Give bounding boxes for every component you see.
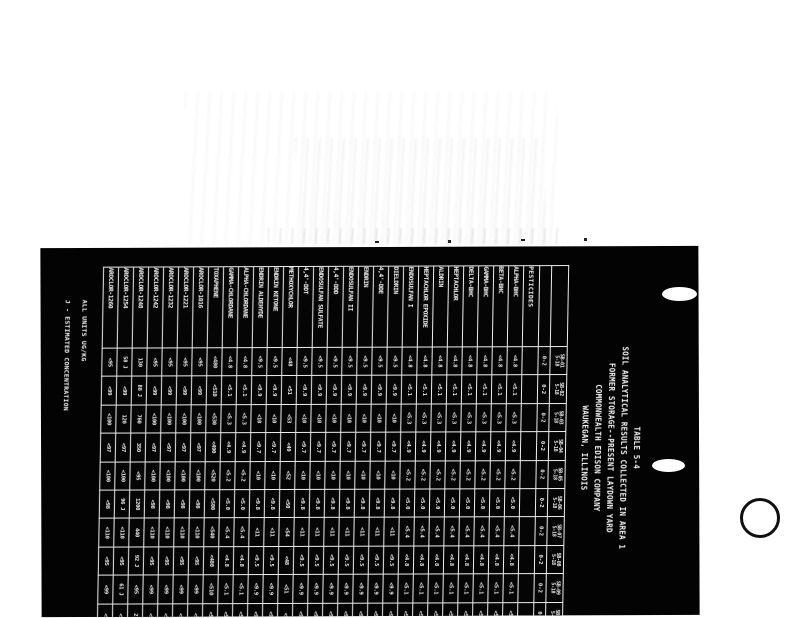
value-cell: <5.0: [234, 490, 249, 518]
value-cell: <10: [251, 404, 266, 432]
analyte-name-cell: METHOXYCHLOR: [282, 266, 298, 347]
value-cell: <5.1: [476, 375, 491, 403]
analyte-name-cell: AROCLOR-1232: [162, 267, 178, 348]
rotated-document: TABLE 5-4 SOIL ANALYTICAL RESULTS COLLEC…: [40, 264, 696, 618]
value-cell: <9.9: [293, 575, 308, 603]
value-cell: <100: [115, 462, 130, 490]
value-cell: <9.9: [338, 574, 353, 602]
value-cell: <5.0: [457, 602, 473, 617]
value-cell: <11: [339, 518, 354, 546]
value-cell: <510: [203, 575, 218, 603]
analyte-name-cell: AROCLOR-1260: [102, 267, 118, 348]
value-cell: <9.9: [323, 574, 338, 602]
value-cell: <4.8: [413, 546, 428, 574]
value-cell: <9.9: [386, 375, 401, 403]
analyte-name-cell: AROCLOR-1248: [132, 267, 148, 348]
value-cell: <5.3: [416, 404, 431, 432]
value-cell: <4.8: [473, 545, 488, 573]
value-cell: <9.5: [353, 546, 368, 574]
value-cell: <5.4: [489, 517, 504, 545]
value-cell: <4.8: [432, 347, 447, 375]
value-cell: <9.5: [372, 347, 387, 375]
sample-header-cell: SB-045-18: [548, 432, 565, 460]
value-cell: <97: [97, 604, 113, 618]
value-cell: <5.1: [218, 575, 233, 603]
value-cell: <99: [176, 376, 191, 404]
value-cell: <4.9: [445, 432, 460, 460]
value-cell: <97: [100, 433, 115, 461]
value-cell: <5.0: [502, 602, 518, 617]
value-cell: <5.4: [429, 517, 444, 545]
value-cell: <4.8: [402, 347, 417, 375]
value-cell: <98: [174, 490, 189, 518]
value-cell: <9.9: [248, 575, 263, 603]
analyte-name-cell: ALDRIN: [432, 266, 448, 347]
value-cell: <9.7: [370, 432, 385, 460]
value-cell: <5.4: [444, 517, 459, 545]
value-cell: <9.5: [308, 546, 323, 574]
value-cell: <11: [324, 518, 339, 546]
value-cell: <5.4: [504, 517, 519, 545]
value-cell: <9.9: [251, 376, 266, 404]
value-cell: <95: [98, 547, 113, 575]
value-cell: <5.0: [489, 489, 504, 517]
value-cell: <5.3: [446, 404, 461, 432]
value-cell: <5.1: [413, 574, 428, 602]
value-cell: <4.8: [507, 347, 522, 375]
value-cell: <4.8: [458, 546, 473, 574]
value-cell: <9.5: [248, 546, 263, 574]
analyte-name-cell: AROCLOR-1254: [117, 267, 133, 348]
value-cell: <99: [188, 575, 203, 603]
value-cell: <4.8: [233, 546, 248, 574]
value-cell: <9.7: [337, 603, 353, 617]
value-cell: <10: [250, 461, 265, 489]
value-cell: <4.8: [398, 546, 413, 574]
value-cell: <10: [371, 404, 386, 432]
value-cell: <5.1: [446, 375, 461, 403]
value-cell: <9.8: [264, 489, 279, 517]
value-cell: <5.2: [235, 461, 250, 489]
value-cell: <4.9: [235, 433, 250, 461]
depth-header-cell: 0-2: [538, 347, 550, 375]
analyte-name-cell: ENDRIN ALDEHYDE: [252, 267, 268, 348]
value-cell: <4.9: [430, 432, 445, 460]
value-cell: <5.1: [221, 376, 236, 404]
value-cell: <5.3: [506, 403, 521, 431]
value-cell: <110: [114, 518, 129, 546]
value-cell: <4.9: [400, 432, 415, 460]
value-cell: <9.7: [247, 603, 263, 617]
section-empty-cell: [520, 460, 536, 488]
value-cell: <9.7: [250, 433, 265, 461]
value-cell: <4.8: [477, 347, 492, 375]
value-cell: <5.0: [442, 602, 458, 617]
value-cell: <9.8: [309, 489, 324, 517]
value-cell: <10: [355, 461, 370, 489]
value-cell: 120: [116, 405, 131, 433]
value-cell: <5.1: [461, 375, 476, 403]
value-cell: 350: [130, 433, 145, 461]
sample-header-cell: SB-055-18: [548, 460, 565, 488]
value-cell: <95: [173, 547, 188, 575]
value-cell: <5.3: [491, 404, 506, 432]
punch-hole-outline: [740, 498, 780, 538]
value-cell: <4.9: [220, 433, 235, 461]
value-cell: <95: [162, 348, 177, 376]
value-cell: <5.1: [488, 574, 503, 602]
value-cell: 96 J: [114, 490, 129, 518]
value-cell: <9.8: [249, 490, 264, 518]
results-table: SB-015-18SB-025-18SB-035-18SB-045-18SB-0…: [97, 265, 569, 617]
value-cell: <5.2: [445, 460, 460, 488]
value-cell: <9.9: [353, 574, 368, 602]
value-cell: <11: [354, 518, 369, 546]
value-cell: <5.0: [459, 489, 474, 517]
value-cell: <9.5: [293, 546, 308, 574]
analyte-name-cell: ENDRIN KETONE: [267, 267, 283, 348]
value-cell: <9.7: [352, 603, 368, 617]
section-empty-cell: [519, 489, 535, 517]
value-cell: <95: [143, 547, 158, 575]
analyte-name-cell: 4,4'-DDT: [297, 266, 313, 347]
value-cell: <9.5: [338, 546, 353, 574]
value-cell: <97: [142, 603, 158, 617]
analyte-name-cell: ENDOSULFAN I: [402, 266, 418, 347]
value-cell: <490: [205, 433, 220, 461]
results-table-body: SB-015-18SB-025-18SB-035-18SB-045-18SB-0…: [97, 266, 568, 618]
bleedthrough-smudge: [295, 138, 545, 246]
analyte-name-cell: ALPHA-BHC: [507, 266, 523, 347]
section-empty-cell: [517, 602, 534, 617]
analyte-name-cell: AROCLOR-1221: [177, 267, 193, 348]
value-cell: <5.4: [234, 518, 249, 546]
value-cell: <500: [204, 490, 219, 518]
value-cell: <48: [282, 347, 297, 375]
value-cell: <9.5: [252, 348, 267, 376]
analyte-name-cell: AROCLOR-1016: [192, 267, 208, 348]
photocopy-sheet: TABLE 5-4 SOIL ANALYTICAL RESULTS COLLEC…: [40, 246, 699, 617]
value-cell: <5.3: [431, 404, 446, 432]
value-cell: <50: [279, 489, 294, 517]
value-cell: <5.1: [428, 574, 443, 602]
value-cell: <5.0: [414, 489, 429, 517]
footnotes: ALL UNITS UG/KG J - ESTIMATED CONCENTRAT…: [53, 300, 93, 617]
value-cell: <5.1: [503, 574, 518, 602]
value-cell: <5.3: [221, 404, 236, 432]
value-cell: <520: [205, 461, 220, 489]
value-cell: <4.8: [428, 546, 443, 574]
value-cell: <9.5: [357, 347, 372, 375]
value-cell: <9.9: [356, 376, 371, 404]
sample-header-cell: SB-065-18: [547, 488, 564, 516]
value-cell: <110: [99, 518, 114, 546]
value-cell: <97: [160, 433, 175, 461]
value-cell: <9.8: [369, 489, 384, 517]
analyte-name-cell: BETA-BHC: [492, 266, 508, 347]
depth-header-cell: 0-2: [537, 375, 549, 403]
value-cell: <4.8: [503, 545, 518, 573]
value-cell: <10: [310, 461, 325, 489]
value-cell: <99: [101, 376, 116, 404]
value-cell: <10: [326, 404, 341, 432]
value-cell: <5.0: [219, 490, 234, 518]
sample-header-cell: SB-015-18: [550, 347, 567, 375]
analyte-name-cell: DELTA-BHC: [462, 266, 478, 347]
sample-header-cell: SB-095-18: [546, 574, 563, 602]
analyte-name-cell: 4,4'-DDD: [327, 266, 343, 347]
value-cell: <99: [191, 376, 206, 404]
depth-header-cell: 0-2: [534, 574, 546, 602]
value-cell: <5.4: [474, 517, 489, 545]
value-cell: <5.0: [412, 602, 428, 617]
value-cell: <9.9: [341, 376, 356, 404]
value-cell: <11: [369, 517, 384, 545]
value-cell: <5.2: [475, 460, 490, 488]
value-cell: <5.4: [399, 517, 414, 545]
value-cell: <5.1: [458, 574, 473, 602]
value-cell: <11: [294, 518, 309, 546]
value-cell: <49: [280, 433, 295, 461]
value-cell: <9.5: [387, 347, 402, 375]
analyte-name-cell: ENDOSULFAN SULFATE: [312, 266, 328, 347]
corner-cell: [538, 266, 551, 347]
value-cell: <4.9: [475, 432, 490, 460]
value-cell: <4.8: [447, 347, 462, 375]
depth-header-cell: 0-2: [535, 489, 547, 517]
value-cell: <4.8: [237, 348, 252, 376]
value-cell: <51: [278, 575, 293, 603]
value-cell: 58 J: [117, 348, 132, 376]
value-cell: <100: [190, 461, 205, 489]
value-cell: <95: [177, 348, 192, 376]
depth-header-cell: 0-2: [534, 545, 546, 573]
value-cell: <5.0: [474, 489, 489, 517]
value-cell: <9.9: [368, 574, 383, 602]
value-cell: <5.2: [400, 461, 415, 489]
value-cell: <9.9: [263, 575, 278, 603]
value-cell: <95: [102, 348, 117, 376]
value-cell: <100: [101, 405, 116, 433]
value-cell: <99: [98, 575, 113, 603]
value-cell: <10: [385, 461, 400, 489]
sample-header-cell: SB-075-18: [547, 517, 564, 545]
analyte-name-cell: HEPTACHLOR EPOXIDE: [417, 266, 433, 347]
value-cell: <5.1: [401, 375, 416, 403]
scan-speck: [521, 239, 525, 241]
value-cell: <5.0: [487, 602, 503, 617]
bleedthrough-smudge: [185, 92, 557, 245]
value-cell: <5.1: [416, 375, 431, 403]
value-cell: <54: [279, 518, 294, 546]
value-cell: <5.4: [414, 517, 429, 545]
section-empty-cell: [522, 347, 538, 375]
value-cell: <5.0: [504, 489, 519, 517]
value-cell: <98: [144, 490, 159, 518]
value-cell: <5.0: [472, 602, 488, 617]
value-cell: <100: [145, 461, 160, 489]
value-cell: <4.8: [443, 546, 458, 574]
value-cell: <5.0: [232, 603, 248, 617]
value-cell: <5.1: [431, 375, 446, 403]
sample-header-cell: SB-085-18: [546, 545, 563, 573]
analyte-name-cell: GAMMA-BHC: [477, 266, 493, 347]
scan-speck: [375, 241, 379, 243]
value-cell: <97: [157, 603, 173, 617]
value-cell: <9.5: [383, 546, 398, 574]
value-cell: <9.7: [307, 603, 323, 617]
value-cell: <9.7: [340, 432, 355, 460]
value-cell: <97: [112, 604, 128, 618]
value-cell: <100: [146, 405, 161, 433]
analyte-name-cell: 4,4'-DDE: [372, 266, 388, 347]
value-cell: <5.0: [217, 603, 233, 617]
value-cell: <4.8: [417, 347, 432, 375]
value-cell: <9.5: [312, 347, 327, 375]
value-cell: <99: [173, 575, 188, 603]
value-cell: <100: [160, 461, 175, 489]
value-cell: <5.1: [236, 376, 251, 404]
value-cell: <9.5: [342, 347, 357, 375]
section-empty-cell: [518, 545, 534, 573]
analyte-name-cell: ENDRIN: [357, 266, 373, 347]
value-cell: <98: [189, 490, 204, 518]
value-cell: <4.8: [492, 347, 507, 375]
value-cell: <4.8: [488, 545, 503, 573]
value-cell: <10: [325, 461, 340, 489]
value-cell: <5.0: [427, 602, 443, 617]
value-cell: <9.8: [384, 489, 399, 517]
value-cell: 92 J: [128, 547, 143, 575]
value-cell: <10: [341, 404, 356, 432]
section-empty-cell: [521, 375, 537, 403]
value-cell: <100: [161, 405, 176, 433]
depth-header-cell: 0-2: [536, 432, 548, 460]
value-cell: <9.8: [294, 489, 309, 517]
value-cell: <97: [145, 433, 160, 461]
corner-cell: [550, 266, 568, 347]
value-cell: <480: [203, 546, 218, 574]
value-cell: 210: [127, 603, 143, 617]
value-cell: <97: [175, 433, 190, 461]
value-cell: <5.4: [459, 517, 474, 545]
value-cell: <95: [147, 348, 162, 376]
analyte-name-cell: HEPTACHLOR: [447, 266, 463, 347]
value-cell: <11: [384, 517, 399, 545]
value-cell: <9.7: [292, 603, 308, 617]
value-cell: <5.0: [397, 603, 413, 618]
value-cell: <10: [266, 404, 281, 432]
value-cell: <99: [158, 575, 173, 603]
value-cell: <10: [340, 461, 355, 489]
sample-header-cell: SB-105-18: [545, 602, 563, 617]
analyte-name-cell: AROCLOR-1242: [147, 267, 163, 348]
value-cell: 88 J: [131, 376, 146, 404]
value-cell: <5.2: [220, 461, 235, 489]
value-cell: <530: [206, 405, 221, 433]
value-cell: 1200: [129, 490, 144, 518]
value-cell: <540: [204, 518, 219, 546]
value-cell: 130: [132, 348, 147, 376]
analyte-name-cell: ALPHA-CHLORDANE: [237, 267, 253, 348]
section-label-cell: PESTICIDES: [522, 266, 539, 347]
value-cell: <5.2: [490, 460, 505, 488]
value-cell: <4.9: [505, 432, 520, 460]
value-cell: <100: [176, 405, 191, 433]
value-cell: <97: [172, 603, 188, 617]
value-cell: <5.2: [415, 461, 430, 489]
value-cell: <110: [144, 518, 159, 546]
value-cell: <9.9: [311, 376, 326, 404]
value-cell: <5.1: [491, 375, 506, 403]
value-cell: <500: [202, 603, 218, 617]
value-cell: <9.5: [263, 546, 278, 574]
value-cell: <9.7: [367, 603, 383, 618]
value-cell: <53: [281, 404, 296, 432]
analyte-name-cell: TOXAPHENE: [207, 267, 223, 348]
depth-header-cell: 0-2: [537, 403, 549, 431]
value-cell: <5.3: [236, 404, 251, 432]
value-cell: <9.5: [323, 546, 338, 574]
hole-punch-mark: [662, 287, 697, 301]
hole-punch-mark: [652, 459, 685, 472]
section-empty-cell: [520, 432, 536, 460]
value-cell: <5.1: [443, 574, 458, 602]
value-cell: <5.0: [429, 489, 444, 517]
value-cell: <4.8: [462, 347, 477, 375]
depth-header-cell: 0-2: [533, 602, 545, 617]
bleedthrough-smudge: [268, 228, 568, 244]
value-cell: 61 J: [113, 575, 128, 603]
value-cell: <99: [161, 376, 176, 404]
value-cell: <95: [188, 546, 203, 574]
value-cell: <98: [99, 490, 114, 518]
document-title: TABLE 5-4 SOIL ANALYTICAL RESULTS COLLEC…: [575, 264, 646, 617]
value-cell: <5.3: [461, 404, 476, 432]
scan-speck: [448, 240, 451, 243]
value-cell: <9.7: [295, 433, 310, 461]
value-cell: <10: [265, 461, 280, 489]
value-cell: <9.7: [310, 433, 325, 461]
value-cell: <5.2: [430, 460, 445, 488]
value-cell: <5.2: [505, 460, 520, 488]
value-cell: <10: [370, 461, 385, 489]
value-cell: <5.1: [398, 574, 413, 602]
value-cell: <97: [115, 433, 130, 461]
value-cell: <110: [174, 518, 189, 546]
value-cell: <4.9: [490, 432, 505, 460]
sample-header-cell: SB-035-18: [549, 403, 566, 431]
value-cell: <52: [280, 461, 295, 489]
value-cell: <9.7: [322, 603, 338, 617]
value-cell: <9.5: [297, 347, 312, 375]
value-cell: <5.0: [399, 489, 414, 517]
depth-header-cell: 0-2: [535, 517, 547, 545]
value-cell: <11: [264, 518, 279, 546]
analyte-name-cell: DIELDRIN: [387, 266, 403, 347]
value-cell: <95: [128, 575, 143, 603]
value-cell: <100: [175, 461, 190, 489]
value-cell: <9.7: [355, 432, 370, 460]
value-cell: <4.8: [218, 546, 233, 574]
value-cell: <11: [249, 518, 264, 546]
value-cell: <9.9: [383, 574, 398, 602]
value-cell: <9.5: [327, 347, 342, 375]
analyte-name-cell: ENDOSULFAN II: [342, 266, 358, 347]
value-cell: <4.9: [460, 432, 475, 460]
value-cell: <9.5: [368, 546, 383, 574]
value-cell: <9.7: [382, 603, 398, 618]
